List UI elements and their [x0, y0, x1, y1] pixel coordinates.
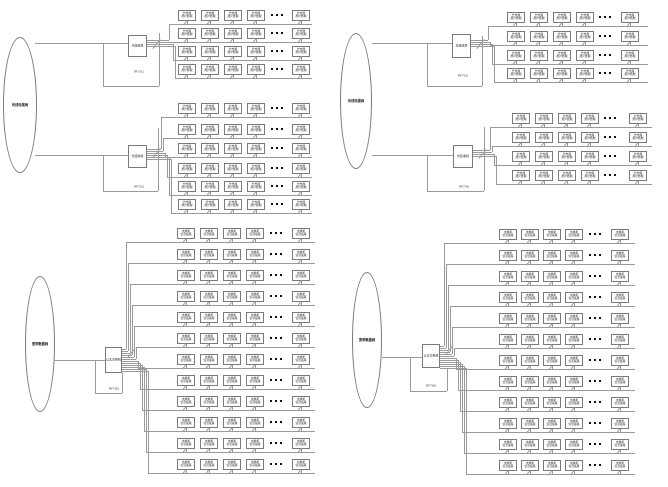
terminal-stub: [209, 428, 210, 431]
terminal-stub: [552, 240, 553, 243]
terminal-box: 交换机信息插座: [499, 271, 517, 282]
terminal-stub: [187, 192, 188, 195]
terminal-box: 分支器用户终端: [621, 50, 639, 61]
dots-separator: [276, 185, 278, 187]
terminal-box: 交换机信息插座: [565, 355, 583, 366]
dots-separator: [280, 316, 282, 318]
terminal-stub: [567, 162, 568, 165]
terminal-box-label: 分支器用户终端: [536, 171, 552, 180]
cable-label-label: RF7(3): [449, 72, 477, 80]
terminal-stub: [521, 143, 522, 146]
dots-separator: [599, 72, 601, 74]
terminal-box-line2: 信息插座: [524, 403, 535, 406]
terminal-box-label: 交换机信息插座: [224, 376, 240, 385]
terminal-box-label: 分支器用户终端: [582, 171, 598, 180]
terminal-box-line2: 信息插座: [546, 466, 557, 469]
terminal-stub: [186, 407, 187, 410]
terminal-box-label: 交换机信息插座: [500, 419, 516, 428]
terminal-box-line2: 信息插座: [524, 361, 535, 364]
terminal-box: 分支器用户终端: [292, 46, 310, 57]
terminal-box-line2: 信息插座: [180, 339, 191, 342]
trunk-line: [462, 364, 463, 432]
terminal-box: 交换机信息插座: [543, 292, 561, 303]
terminal-stub: [186, 470, 187, 473]
terminal-box-line2: 用户终端: [556, 37, 567, 40]
terminal-box-label: 交换机信息插座: [247, 229, 263, 238]
terminal-box-label: 交换机信息插座: [522, 440, 538, 449]
dots-separator: [270, 337, 272, 339]
terminal-box-line2: 用户终端: [250, 109, 261, 112]
terminal-box: 交换机信息插座: [246, 459, 264, 470]
terminal-box-label: 交换机信息插座: [247, 355, 263, 364]
terminal-box: 分支器用户终端: [224, 46, 242, 57]
terminal-box: 交换机信息插座: [292, 228, 310, 239]
outlet-line: [147, 149, 161, 150]
dots-separator: [270, 358, 272, 360]
terminal-box: 分支器用户终端: [224, 199, 242, 210]
switch-node-label: 以太交换机: [423, 345, 439, 367]
outlet-line: [471, 40, 488, 41]
terminal-box-line2: 用户终端: [515, 157, 526, 160]
terminal-box-label: 交换机信息插座: [293, 250, 309, 259]
terminal-box: 交换机信息插座: [200, 291, 218, 302]
dots-separator: [275, 400, 277, 402]
terminal-box-label: 交换机信息插座: [612, 419, 628, 428]
terminal-box: 交换机信息插座: [177, 396, 195, 407]
dots-separator: [594, 233, 596, 235]
dots-separator: [599, 338, 601, 340]
terminal-box-label: 交换机信息插座: [544, 419, 560, 428]
terminal-box-label: 分支器用户终端: [293, 164, 309, 173]
dots-separator: [604, 72, 606, 74]
dots-separator: [276, 68, 278, 70]
terminal-box-line2: 用户终端: [533, 18, 544, 21]
terminal-box-line2: 用户终端: [295, 16, 306, 19]
terminal-box: 交换机信息插座: [565, 229, 583, 240]
dots-separator: [270, 400, 272, 402]
dots-separator: [275, 463, 277, 465]
terminal-box-label: 分支器用户终端: [248, 65, 264, 74]
terminal-box-line2: 信息插座: [502, 340, 513, 343]
terminal-box: 交换机信息插座: [611, 292, 629, 303]
terminal-box: 交换机信息插座: [223, 228, 241, 239]
trunk-line: [452, 327, 453, 354]
terminal-box-label: 交换机信息插座: [201, 439, 217, 448]
terminal-box-line2: 用户终端: [624, 74, 635, 77]
terminal-stub: [574, 408, 575, 411]
terminal-stub: [590, 143, 591, 146]
terminal-box: 分支器用户终端: [530, 68, 548, 79]
cable-label-text: RF7(4): [459, 185, 469, 188]
terminal-stub: [552, 282, 553, 285]
terminal-box-label: 交换机信息插座: [544, 230, 560, 239]
terminal-box: 交换机信息插座: [611, 397, 629, 408]
terminal-box-label: 交换机信息插座: [544, 461, 560, 470]
trunk-line: [169, 157, 170, 195]
row-line: [130, 284, 315, 285]
terminal-stub: [585, 61, 586, 64]
terminal-stub: [187, 39, 188, 42]
terminal-stub: [539, 61, 540, 64]
terminal-box-line2: 用户终端: [538, 138, 549, 141]
row-line: [466, 474, 635, 475]
network-topology-diagram: 有线电视网光接收机RF7(1)分支器用户终端分支器用户终端分支器用户终端分支器用…: [0, 0, 668, 487]
terminal-stub: [552, 450, 553, 453]
terminal-box-line2: 信息插座: [568, 340, 579, 343]
terminal-stub: [209, 302, 210, 305]
terminal-box-label: 分支器用户终端: [248, 29, 264, 38]
terminal-box: 分支器用户终端: [507, 50, 525, 61]
terminal-box-label: 分支器用户终端: [508, 13, 524, 22]
terminal-box-label: 交换机信息插座: [566, 272, 582, 281]
trunk-line: [454, 348, 455, 356]
terminal-stub: [233, 192, 234, 195]
terminal-box-label: 交换机信息插座: [500, 356, 516, 365]
terminal-box-line2: 信息插座: [203, 339, 214, 342]
dots-separator: [271, 147, 273, 149]
terminal-box: 分支器用户终端: [512, 151, 530, 162]
dots-separator: [594, 317, 596, 319]
cable-label-text: RF7(5): [109, 387, 119, 390]
terminal-box-line2: 信息插座: [502, 361, 513, 364]
terminal-box-label: 分支器用户终端: [577, 51, 593, 60]
row-line: [132, 305, 315, 306]
terminal-stub: [233, 135, 234, 138]
terminal-stub: [255, 449, 256, 452]
cloud-label: 宽带数据网: [359, 338, 375, 341]
terminal-box-label: 分支器用户终端: [225, 29, 241, 38]
terminal-box: 分支器用户终端: [224, 163, 242, 174]
terminal-box-line2: 信息插座: [502, 403, 513, 406]
terminal-stub: [590, 162, 591, 165]
terminal-box-line2: 用户终端: [295, 205, 306, 208]
terminal-box-label: 交换机信息插座: [612, 293, 628, 302]
terminal-box: 交换机信息插座: [200, 354, 218, 365]
terminal-box-label: 分支器用户终端: [508, 32, 524, 41]
dots-separator: [276, 50, 278, 52]
terminal-box-line2: 用户终端: [556, 74, 567, 77]
row-line: [460, 411, 635, 412]
terminal-box-line2: 用户终端: [632, 138, 643, 141]
terminal-box-label: 交换机信息插座: [522, 293, 538, 302]
dots-separator: [281, 14, 283, 16]
terminal-box-label: 交换机信息插座: [544, 398, 560, 407]
terminal-box: 分支器用户终端: [292, 143, 310, 154]
outlet-line: [440, 366, 464, 367]
terminal-box-label: 交换机信息插座: [293, 292, 309, 301]
terminal-box-line2: 用户终端: [533, 37, 544, 40]
terminal-box: 交换机信息插座: [499, 376, 517, 387]
dots-separator: [280, 274, 282, 276]
terminal-stub: [620, 261, 621, 264]
terminal-box-line2: 信息插座: [546, 361, 557, 364]
terminal-box: 交换机信息插座: [292, 459, 310, 470]
dots-separator: [271, 107, 273, 109]
terminal-stub: [255, 470, 256, 473]
terminal-stub: [301, 470, 302, 473]
terminal-box-line2: 信息插座: [568, 424, 579, 427]
terminal-box-label: 分支器用户终端: [248, 200, 264, 209]
terminal-box-line2: 信息插座: [568, 277, 579, 280]
dots-separator: [271, 167, 273, 169]
terminal-box-label: 交换机信息插座: [178, 250, 194, 259]
terminal-box-label: 分支器用户终端: [248, 104, 264, 113]
terminal-box-label: 交换机信息插座: [201, 334, 217, 343]
outlet-line: [440, 356, 454, 357]
terminal-stub: [544, 162, 545, 165]
dots-separator: [589, 233, 591, 235]
terminal-box-line2: 信息插座: [524, 319, 535, 322]
terminal-box-line2: 用户终端: [510, 56, 521, 59]
terminal-box: 交换机信息插座: [223, 375, 241, 386]
terminal-box-label: 分支器用户终端: [293, 29, 309, 38]
dots-separator: [614, 155, 616, 157]
terminal-box-line2: 信息插座: [180, 255, 191, 258]
terminal-box-label: 交换机信息插座: [612, 272, 628, 281]
terminal-stub: [562, 42, 563, 45]
terminal-box: 分支器用户终端: [581, 170, 599, 181]
terminal-box: 交换机信息插座: [246, 417, 264, 428]
terminal-box: 交换机信息插座: [565, 460, 583, 471]
dots-separator: [609, 174, 611, 176]
outlet-line: [147, 40, 169, 41]
terminal-box: 交换机信息插座: [611, 355, 629, 366]
row-line: [163, 138, 312, 139]
terminal-box-line2: 信息插座: [614, 235, 625, 238]
row-line: [126, 242, 315, 243]
terminal-stub: [232, 449, 233, 452]
dots-separator: [594, 443, 596, 445]
network-cloud: 宽带数据网: [25, 276, 55, 412]
terminal-stub: [301, 210, 302, 213]
terminal-box-line2: 信息插座: [524, 298, 535, 301]
terminal-stub: [255, 302, 256, 305]
terminal-stub: [187, 135, 188, 138]
terminal-box-line2: 信息插座: [295, 276, 306, 279]
terminal-box: 交换机信息插座: [177, 270, 195, 281]
terminal-box-line2: 信息插座: [568, 256, 579, 259]
terminal-box: 分支器用户终端: [558, 170, 576, 181]
dots-separator: [599, 296, 601, 298]
terminal-box-line2: 用户终端: [295, 187, 306, 190]
terminal-box-line2: 用户终端: [250, 34, 261, 37]
terminal-stub: [209, 407, 210, 410]
dots-separator: [594, 464, 596, 466]
terminal-stub: [209, 449, 210, 452]
outlet-line: [471, 46, 494, 47]
terminal-stub: [620, 303, 621, 306]
loop-line: [484, 127, 485, 191]
cable-label: RF7(2): [125, 183, 153, 191]
dots-separator: [604, 174, 606, 176]
terminal-stub: [233, 21, 234, 24]
terminal-stub: [255, 281, 256, 284]
terminal-stub: [301, 174, 302, 177]
terminal-box: 交换机信息插座: [292, 354, 310, 365]
terminal-box-line2: 信息插座: [524, 235, 535, 238]
terminal-stub: [630, 23, 631, 26]
terminal-box-line2: 用户终端: [538, 119, 549, 122]
loop-line: [410, 357, 411, 391]
network-cloud-label: 有线电视网: [341, 34, 371, 168]
terminal-box-line2: 用户终端: [204, 34, 215, 37]
terminal-box: 分支器用户终端: [224, 28, 242, 39]
terminal-box-label: 交换机信息插座: [500, 440, 516, 449]
terminal-box: 交换机信息插座: [223, 396, 241, 407]
terminal-box-line2: 信息插座: [203, 381, 214, 384]
terminal-box: 交换机信息插座: [543, 250, 561, 261]
dots-separator: [275, 442, 277, 444]
terminal-stub: [301, 323, 302, 326]
terminal-box: 分支器用户终端: [576, 50, 594, 61]
dots-separator: [594, 359, 596, 361]
terminal-box-label: 交换机信息插座: [247, 334, 263, 343]
terminal-box-label: 分支器用户终端: [577, 13, 593, 22]
terminal-box-label: 分支器用户终端: [293, 125, 309, 134]
terminal-box-line2: 用户终端: [632, 176, 643, 179]
terminal-box-label: 交换机信息插座: [522, 230, 538, 239]
terminal-box: 分支器用户终端: [292, 163, 310, 174]
cloud-label: 宽带数据网: [32, 342, 48, 345]
terminal-stub: [508, 450, 509, 453]
outlet-line: [147, 159, 171, 160]
terminal-box-label: 分支器用户终端: [554, 69, 570, 78]
terminal-box-line2: 用户终端: [624, 18, 635, 21]
row-line: [140, 389, 315, 390]
terminal-box: 分支器用户终端: [247, 28, 265, 39]
dots-separator: [280, 442, 282, 444]
dots-separator: [281, 50, 283, 52]
terminal-box-label: 交换机信息插座: [566, 293, 582, 302]
terminal-stub: [255, 386, 256, 389]
switch-node-label: 光接收机: [454, 146, 472, 167]
terminal-box: 交换机信息插座: [521, 250, 539, 261]
trunk-line: [163, 138, 164, 151]
outlet-line: [440, 368, 466, 369]
outlet-line: [440, 348, 446, 349]
terminal-box: 交换机信息插座: [177, 459, 195, 470]
terminal-box-line2: 信息插座: [203, 318, 214, 321]
dots-separator: [604, 35, 606, 37]
terminal-box-label: 分支器用户终端: [293, 11, 309, 20]
dots-separator: [280, 232, 282, 234]
terminal-box-line2: 信息插座: [524, 256, 535, 259]
dots-separator: [281, 147, 283, 149]
outlet-line: [473, 152, 492, 153]
terminal-stub: [187, 174, 188, 177]
terminal-box-label: 交换机信息插座: [566, 461, 582, 470]
trunk-line: [128, 263, 129, 351]
terminal-stub: [567, 124, 568, 127]
terminal-box: 分支器用户终端: [247, 181, 265, 192]
terminal-box-label: 交换机信息插座: [544, 377, 560, 386]
terminal-box-line2: 信息插座: [180, 234, 191, 237]
terminal-box: 交换机信息插座: [521, 397, 539, 408]
terminal-box: 交换机信息插座: [246, 396, 264, 407]
dots-separator: [599, 317, 601, 319]
terminal-stub: [562, 23, 563, 26]
terminal-box-line2: 用户终端: [227, 109, 238, 112]
terminal-stub: [232, 470, 233, 473]
terminal-box: 交换机信息插座: [246, 354, 264, 365]
cable-label-text: RF7(2): [134, 185, 144, 188]
terminal-box-label: 分支器用户终端: [559, 152, 575, 161]
outlet-line: [440, 354, 452, 355]
terminal-box: 交换机信息插座: [521, 376, 539, 387]
terminal-box-label: 交换机信息插座: [522, 356, 538, 365]
terminal-box: 交换机信息插座: [177, 375, 195, 386]
terminal-box: 交换机信息插座: [543, 460, 561, 471]
terminal-box: 交换机信息插座: [223, 312, 241, 323]
terminal-stub: [301, 57, 302, 60]
terminal-box: 分支器用户终端: [178, 181, 196, 192]
terminal-box: 分支器用户终端: [247, 143, 265, 154]
terminal-box-line2: 信息插座: [203, 402, 214, 405]
terminal-box: 交换机信息插座: [543, 397, 561, 408]
terminal-box-label: 交换机信息插座: [293, 334, 309, 343]
terminal-box: 分支器用户终端: [558, 113, 576, 124]
terminal-stub: [209, 365, 210, 368]
dots-separator: [594, 275, 596, 277]
terminal-box-label: 交换机信息插座: [247, 376, 263, 385]
terminal-stub: [232, 323, 233, 326]
terminal-box-line2: 信息插座: [295, 402, 306, 405]
dots-separator: [614, 136, 616, 138]
terminal-box-label: 交换机信息插座: [566, 230, 582, 239]
terminal-box-label: 分支器用户终端: [179, 11, 195, 20]
terminal-box: 分支器用户终端: [224, 103, 242, 114]
terminal-box-line2: 信息插座: [295, 381, 306, 384]
terminal-stub: [232, 260, 233, 263]
row-line: [169, 24, 312, 25]
terminal-box-line2: 用户终端: [632, 119, 643, 122]
outlet-line: [147, 44, 173, 45]
terminal-box-line2: 用户终端: [181, 130, 192, 133]
terminal-box-label: 交换机信息插座: [293, 355, 309, 364]
dots-separator: [599, 254, 601, 256]
terminal-stub: [620, 345, 621, 348]
terminal-box: 交换机信息插座: [565, 292, 583, 303]
terminal-box-line2: 用户终端: [584, 138, 595, 141]
outlet-line: [147, 157, 169, 158]
terminal-box-line2: 信息插座: [249, 465, 260, 468]
dots-separator: [594, 296, 596, 298]
terminal-stub: [209, 470, 210, 473]
terminal-box-label: 分支器用户终端: [248, 164, 264, 173]
terminal-box-label: 分支器用户终端: [202, 125, 218, 134]
terminal-box-line2: 信息插座: [502, 424, 513, 427]
terminal-box-label: 分支器用户终端: [513, 133, 529, 142]
terminal-box-label: 交换机信息插座: [612, 398, 628, 407]
terminal-box-line2: 用户终端: [538, 157, 549, 160]
terminal-stub: [210, 210, 211, 213]
terminal-box-label: 分支器用户终端: [582, 114, 598, 123]
terminal-box: 交换机信息插座: [292, 291, 310, 302]
terminal-box: 分支器用户终端: [247, 64, 265, 75]
terminal-box-line2: 信息插座: [546, 298, 557, 301]
terminal-box-label: 分支器用户终端: [293, 200, 309, 209]
terminal-box-line2: 信息插座: [249, 360, 260, 363]
outlet-line: [147, 155, 167, 156]
terminal-box-label: 交换机信息插座: [522, 461, 538, 470]
terminal-box: 分支器用户终端: [535, 132, 553, 143]
terminal-box-line2: 信息插座: [249, 234, 260, 237]
terminal-box: 分支器用户终端: [629, 170, 647, 181]
terminal-stub: [620, 282, 621, 285]
terminal-box-line2: 信息插座: [502, 382, 513, 385]
terminal-box-line2: 信息插座: [502, 319, 513, 322]
terminal-box: 交换机信息插座: [543, 334, 561, 345]
